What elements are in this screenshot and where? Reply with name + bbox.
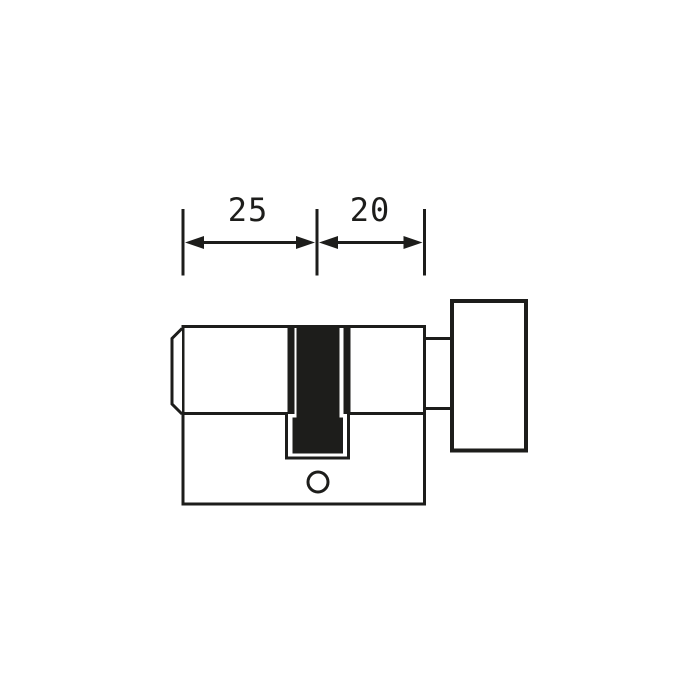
dimension-label-25: 25 (228, 191, 269, 229)
knob-neck (425, 339, 453, 409)
arrowhead-right-icon (404, 236, 423, 249)
arrowhead-right-icon (296, 236, 315, 249)
dimension-arrow-25 (185, 236, 315, 249)
drawing-canvas: 25 20 (0, 0, 700, 700)
thumbturn-knob (452, 301, 526, 451)
arrowhead-left-icon (185, 236, 204, 249)
arrowhead-left-icon (319, 236, 338, 249)
dimension-arrow-20 (319, 236, 423, 249)
front-chamfer (172, 329, 182, 415)
screw-hole (308, 472, 328, 492)
cylinder-body (172, 301, 526, 504)
cylinder-technical-drawing: 25 20 (0, 0, 700, 700)
cam-center-bar (297, 326, 340, 419)
dimension-label-20: 20 (350, 191, 391, 229)
dimension-annotations: 25 20 (183, 191, 425, 276)
cam-side-strip-left (288, 326, 295, 414)
cam-foot (293, 418, 344, 454)
cam-side-strip-right (344, 326, 351, 414)
